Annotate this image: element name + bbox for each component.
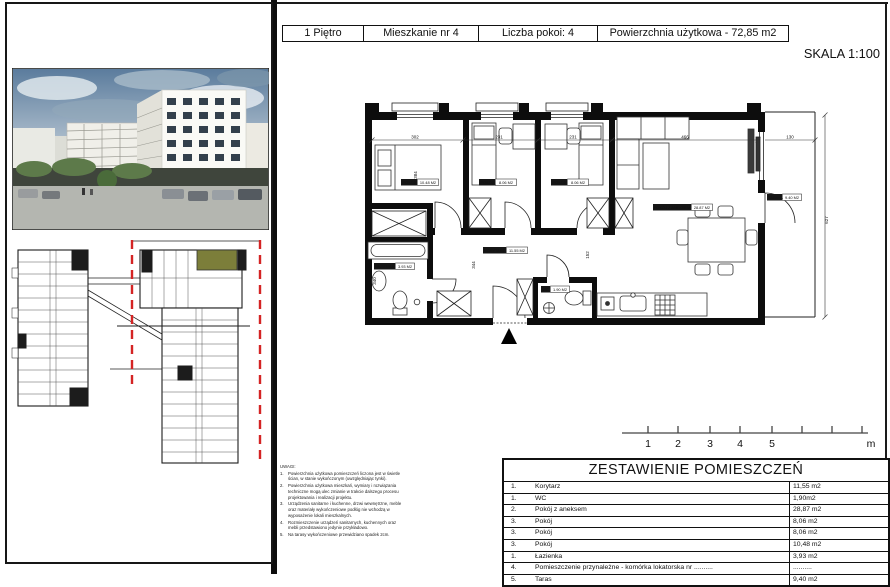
svg-text:POKÓJ: POKÓJ xyxy=(552,180,565,185)
svg-text:ŁAZIENKA: ŁAZIENKA xyxy=(375,264,394,269)
title-strip: 1 Piętro Mieszkanie nr 4 Liczba pokoi: 4… xyxy=(282,25,789,42)
rooms-summary-table: ZESTAWIENIE POMIESZCZEŃ 1. Korytarz 11,5… xyxy=(502,458,890,587)
building-photo xyxy=(12,68,269,230)
svg-text:2: 2 xyxy=(675,438,681,450)
svg-text:3: 3 xyxy=(707,438,713,450)
note-item: 5. Na tarasy wykończeniowe przewidziano … xyxy=(280,532,406,538)
svg-text:POKÓJ: POKÓJ xyxy=(480,180,493,185)
svg-text:130: 130 xyxy=(786,135,794,140)
svg-text:TARAS: TARAS xyxy=(768,195,781,200)
svg-text:340: 340 xyxy=(372,277,377,285)
table-row: 3. Pokój 10,48 m2 xyxy=(504,540,888,552)
note-item: 3. Urządzenia sanitarne i kuchenne, drzw… xyxy=(280,501,406,518)
svg-text:9.40 M2: 9.40 M2 xyxy=(785,195,799,200)
svg-text:1.90 M2: 1.90 M2 xyxy=(553,287,567,292)
floor-plan: 302 231 231 466 130 627 384 344 340 152 … xyxy=(355,95,890,360)
building-b xyxy=(140,250,246,463)
table-row: 1. Łazienka 3,93 m2 xyxy=(504,552,888,564)
kitchen-counter xyxy=(597,293,707,316)
svg-text:152: 152 xyxy=(585,251,590,259)
usable-area-cell: Powierzchnia użytkowa - 72,85 m2 xyxy=(597,26,788,41)
dining-set xyxy=(677,206,757,275)
notes-title: UWAGI: xyxy=(280,464,406,470)
svg-text:627: 627 xyxy=(824,216,829,224)
svg-text:3.93 M2: 3.93 M2 xyxy=(398,264,412,269)
svg-text:POKÓJ Z ANEKSEM: POKÓJ Z ANEKSEM xyxy=(654,205,691,210)
table-row: 3. Pokój 8,06 m2 xyxy=(504,517,888,529)
svg-text:28.87 M2: 28.87 M2 xyxy=(694,205,710,210)
svg-text:4: 4 xyxy=(737,438,743,450)
floor-cell: 1 Piętro xyxy=(283,26,363,41)
svg-text:384: 384 xyxy=(413,171,418,179)
svg-text:8.06 M2: 8.06 M2 xyxy=(499,180,513,185)
scale-label: SKALA 1:100 xyxy=(690,46,880,61)
svg-text:8.06 M2: 8.06 M2 xyxy=(571,180,585,185)
svg-text:344: 344 xyxy=(471,261,476,269)
table-row: 1. WC 1,90m2 xyxy=(504,494,888,506)
svg-text:POKÓJ: POKÓJ xyxy=(402,180,415,185)
room3-label: POKÓJ 8.06 M2 xyxy=(551,179,589,186)
svg-text:KORYTARZ: KORYTARZ xyxy=(484,248,505,253)
svg-text:231: 231 xyxy=(569,135,577,140)
sofa-corner xyxy=(617,117,689,189)
table-row: 3. Pokój 8,06 m2 xyxy=(504,528,888,540)
table-row: 2. Pokój z aneksem 28,87 m2 xyxy=(504,505,888,517)
site-key-plan xyxy=(10,238,268,466)
bed-single-room3 xyxy=(545,123,603,185)
table-row: 5. Taras 9,40 m2 xyxy=(504,575,888,586)
note-item: 2. Powierzchnia użytkowa mieszkań, wymia… xyxy=(280,483,406,500)
svg-text:302: 302 xyxy=(411,135,419,140)
table-row: 1. Korytarz 11,55 m2 xyxy=(504,482,888,494)
svg-text:466: 466 xyxy=(681,135,689,140)
building-a xyxy=(12,250,88,406)
apartment-card-sheet: { "header": { "cells": ["1 Piętro", "Mie… xyxy=(0,0,890,574)
room2-label: POKÓJ 8.06 M2 xyxy=(479,179,517,186)
wc-label: WC 1.90 M2 xyxy=(541,286,570,293)
bed-single-room2 xyxy=(472,123,535,185)
table-row: 4. Pomieszczenie przynależne - komórka l… xyxy=(504,563,888,575)
notes-block: UWAGI: 1. Powierzchnia użytkowa pomieszc… xyxy=(280,464,406,539)
rooms-table-title: ZESTAWIENIE POMIESZCZEŃ xyxy=(504,460,888,482)
svg-text:231: 231 xyxy=(495,135,503,140)
tv-unit xyxy=(748,129,754,173)
svg-text:10.48 M2: 10.48 M2 xyxy=(420,180,436,185)
svg-text:11.55 M2: 11.55 M2 xyxy=(509,248,525,253)
terrace xyxy=(765,112,815,317)
highlighted-unit xyxy=(197,250,237,270)
svg-text:5: 5 xyxy=(769,438,775,450)
svg-text:WC: WC xyxy=(542,287,549,292)
bathroom-fixtures xyxy=(368,242,428,315)
bathroom-label: ŁAZIENKA 3.93 M2 xyxy=(374,263,415,270)
note-item: 1. Powierzchnia użytkowa pomieszczeń lic… xyxy=(280,471,406,482)
entrance-marker-icon xyxy=(501,328,517,344)
terrace-label: TARAS 9.40 M2 xyxy=(767,194,802,201)
living-room-label: POKÓJ Z ANEKSEM 28.87 M2 xyxy=(653,204,713,211)
scale-bar: 1 2 3 4 5 m xyxy=(615,420,885,452)
apartment-cell: Mieszkanie nr 4 xyxy=(363,26,478,41)
wc-fixtures xyxy=(544,291,592,314)
svg-text:1: 1 xyxy=(645,438,651,450)
room1-label: POKÓJ 10.48 M2 xyxy=(401,179,439,186)
note-item: 4. Rozmieszczenie urządzeń sanitarnych, … xyxy=(280,520,406,531)
scale-bar-unit: m xyxy=(867,438,876,450)
rooms-count-cell: Liczba pokoi: 4 xyxy=(478,26,597,41)
corridor-label: KORYTARZ 11.55 M2 xyxy=(483,247,528,254)
